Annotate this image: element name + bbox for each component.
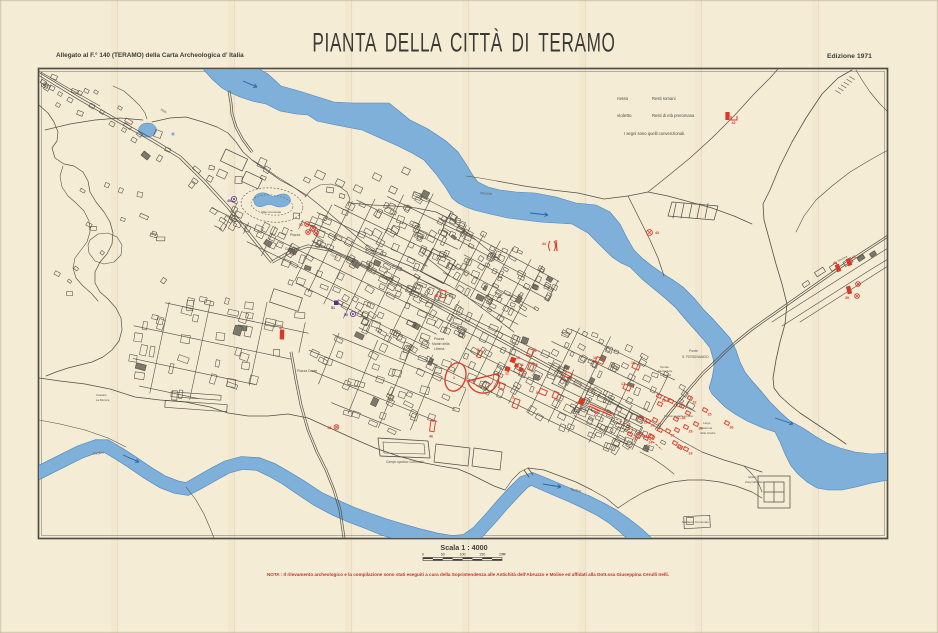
svg-text:47: 47 — [279, 326, 283, 330]
svg-text:43: 43 — [655, 231, 659, 235]
svg-text:52: 52 — [299, 223, 303, 227]
svg-text:12: 12 — [505, 372, 509, 376]
svg-text:11: 11 — [520, 363, 524, 367]
svg-text:45: 45 — [434, 294, 438, 298]
svg-text:Zooprofilattico: Zooprofilattico — [745, 480, 764, 484]
svg-text:La Monica: La Monica — [96, 398, 110, 402]
svg-text:51: 51 — [331, 306, 335, 310]
svg-text:15: 15 — [561, 375, 565, 379]
svg-text:Scala 1 : 4000: Scala 1 : 4000 — [440, 543, 487, 552]
svg-text:rosso: rosso — [617, 96, 629, 101]
svg-text:49: 49 — [227, 199, 231, 203]
svg-text:25: 25 — [708, 413, 712, 417]
svg-text:NOTA : Il rilevamento archeolo: NOTA : Il rilevamento archeologico e la … — [267, 572, 669, 577]
svg-text:33: 33 — [689, 452, 693, 456]
svg-text:16: 16 — [593, 356, 597, 360]
svg-text:18: 18 — [631, 361, 635, 365]
svg-text:17: 17 — [621, 382, 625, 386]
svg-text:Garibaldi: Garibaldi — [285, 247, 299, 251]
svg-text:31: 31 — [674, 404, 678, 408]
svg-text:2: 2 — [481, 383, 483, 387]
svg-text:7: 7 — [477, 348, 479, 352]
svg-text:10: 10 — [516, 356, 520, 360]
svg-text:Vezzola: Vezzola — [480, 191, 492, 196]
svg-text:Mattatoio Comunale: Mattatoio Comunale — [682, 520, 709, 524]
svg-text:Piazza: Piazza — [290, 233, 300, 237]
svg-text:Allegato al F.° 140 (TERAMO) d: Allegato al F.° 140 (TERAMO) della Carta… — [56, 51, 244, 59]
svg-text:Resti romani: Resti romani — [652, 96, 676, 101]
svg-text:50: 50 — [344, 313, 348, 317]
svg-text:Villa Comunale: Villa Comunale — [261, 210, 281, 214]
svg-text:Madonna delle Grazie: Madonna delle Grazie — [664, 414, 694, 418]
svg-text:36: 36 — [730, 426, 734, 430]
svg-text:violetto: violetto — [617, 113, 632, 118]
svg-text:150: 150 — [479, 553, 485, 557]
svg-text:delle Grazie: delle Grazie — [700, 431, 716, 435]
svg-text:Piazza Dante: Piazza Dante — [297, 369, 317, 373]
svg-text:N. Lucidi: N. Lucidi — [660, 373, 671, 377]
svg-text:Madonna: Madonna — [700, 426, 712, 430]
svg-text:6: 6 — [560, 396, 562, 400]
svg-text:Campo sportivo Comunale: Campo sportivo Comunale — [386, 460, 424, 464]
svg-text:42: 42 — [732, 121, 736, 125]
svg-text:Resti di età preromana: Resti di età preromana — [652, 113, 695, 118]
svg-text:Piazza: Piazza — [434, 337, 444, 341]
svg-text:I segni sono quelli convenzion: I segni sono quelli convenzionali. — [624, 131, 685, 136]
svg-text:Ponte: Ponte — [689, 349, 698, 353]
svg-text:48: 48 — [328, 426, 332, 430]
svg-text:Istituto: Istituto — [748, 475, 757, 479]
svg-text:41: 41 — [852, 255, 856, 259]
svg-text:S. FERDINANDO: S. FERDINANDO — [682, 355, 709, 359]
svg-text:20: 20 — [651, 424, 655, 428]
svg-text:100: 100 — [460, 553, 466, 557]
svg-text:Libertà: Libertà — [434, 347, 444, 351]
svg-text:50: 50 — [441, 553, 445, 557]
svg-text:0: 0 — [422, 553, 424, 557]
svg-text:5: 5 — [536, 391, 538, 395]
svg-text:1: 1 — [453, 376, 455, 380]
svg-text:44: 44 — [542, 242, 546, 246]
svg-text:9: 9 — [535, 349, 537, 353]
svg-text:46: 46 — [429, 435, 433, 439]
svg-text:21: 21 — [658, 423, 662, 427]
svg-text:14: 14 — [626, 427, 630, 431]
svg-text:PIANTA DELLA CITTÀ DI TERAMO: PIANTA DELLA CITTÀ DI TERAMO — [312, 28, 615, 58]
svg-text:40: 40 — [833, 261, 837, 265]
svg-text:Castello: Castello — [96, 393, 107, 397]
svg-text:28: 28 — [689, 430, 693, 434]
svg-text:15: 15 — [522, 373, 526, 377]
svg-text:13: 13 — [575, 401, 579, 405]
svg-text:200: 200 — [499, 553, 505, 557]
svg-text:8: 8 — [536, 363, 538, 367]
svg-text:Edizione 1971: Edizione 1971 — [827, 53, 872, 60]
svg-text:Largo: Largo — [703, 421, 711, 425]
svg-text:24: 24 — [649, 441, 653, 445]
svg-text:39: 39 — [845, 296, 849, 300]
svg-text:Martiri della: Martiri della — [432, 342, 450, 346]
svg-text:3: 3 — [512, 396, 514, 400]
svg-text:27: 27 — [671, 434, 675, 438]
svg-text:4: 4 — [498, 381, 500, 385]
svg-text:14: 14 — [594, 410, 598, 414]
svg-text:32: 32 — [693, 401, 697, 405]
